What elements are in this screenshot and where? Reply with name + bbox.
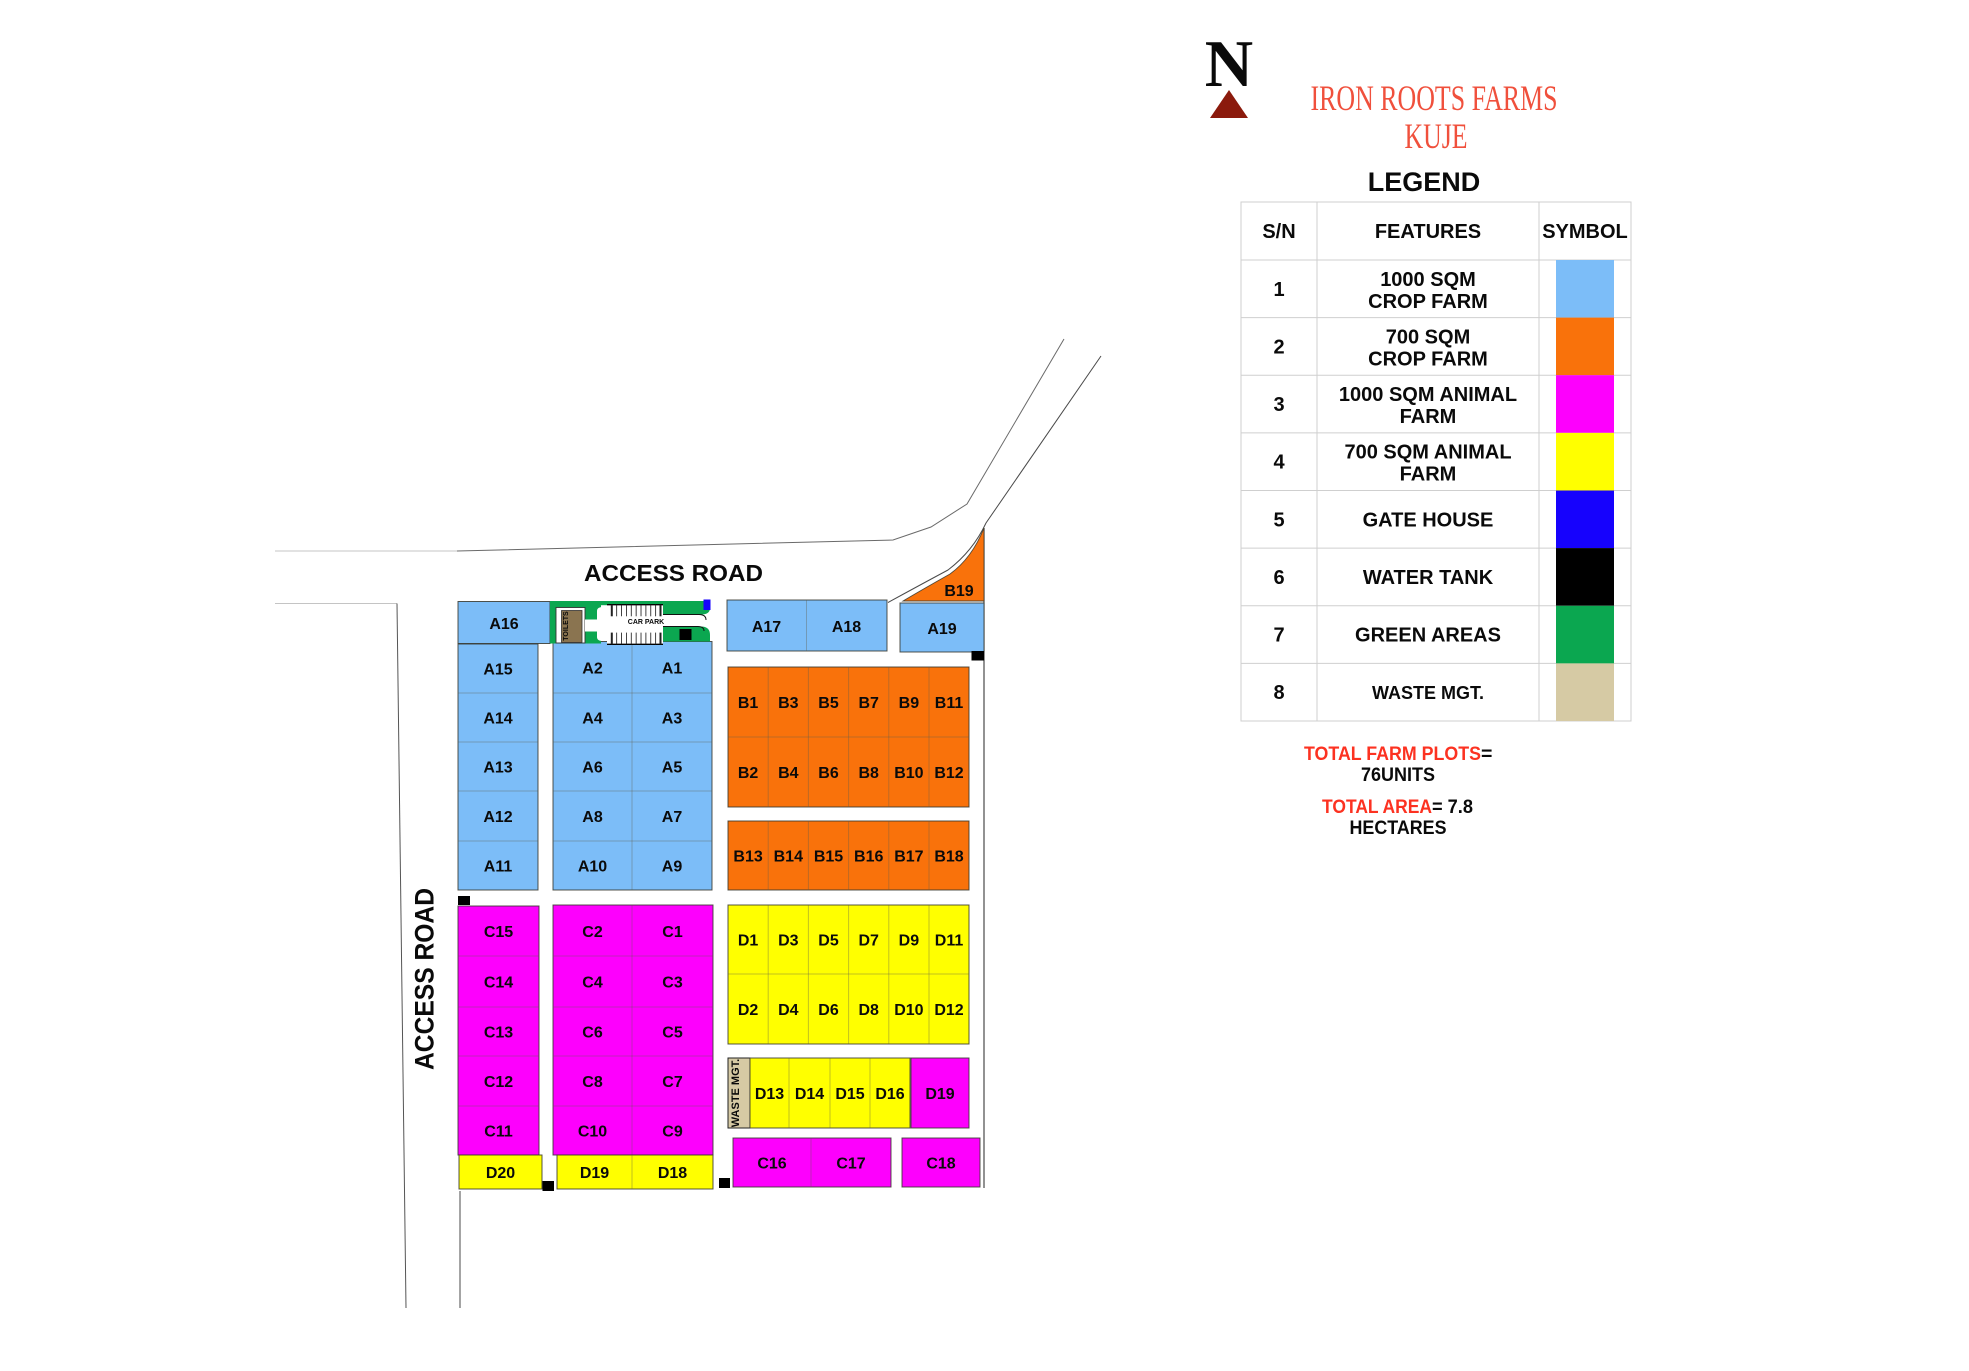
svg-text:B1: B1	[738, 695, 759, 712]
svg-text:LEGEND: LEGEND	[1368, 167, 1481, 197]
svg-text:D19: D19	[580, 1165, 609, 1182]
svg-text:D5: D5	[818, 933, 839, 950]
svg-text:C2: C2	[582, 924, 603, 941]
svg-text:A13: A13	[483, 760, 512, 777]
svg-text:3: 3	[1273, 394, 1284, 416]
svg-text:2: 2	[1273, 336, 1284, 358]
svg-text:D12: D12	[934, 1002, 963, 1019]
svg-text:B9: B9	[899, 695, 920, 712]
svg-text:FARM: FARM	[1400, 406, 1457, 428]
svg-text:B4: B4	[778, 765, 799, 782]
svg-text:D14: D14	[795, 1086, 824, 1103]
svg-text:CAR PARK: CAR PARK	[628, 619, 664, 626]
svg-text:B19: B19	[944, 583, 973, 600]
svg-text:D1: D1	[738, 933, 759, 950]
svg-text:D6: D6	[818, 1002, 839, 1019]
svg-text:D7: D7	[858, 933, 879, 950]
svg-text:C9: C9	[662, 1124, 683, 1141]
svg-text:B17: B17	[894, 849, 923, 866]
svg-text:C13: C13	[484, 1025, 513, 1042]
svg-text:C3: C3	[662, 975, 683, 992]
svg-text:C14: C14	[484, 975, 513, 992]
svg-text:1000 SQM ANIMAL: 1000 SQM ANIMAL	[1339, 384, 1517, 406]
svg-text:D8: D8	[858, 1002, 879, 1019]
svg-text:FARM: FARM	[1400, 464, 1457, 486]
svg-text:C5: C5	[662, 1025, 683, 1042]
svg-text:B2: B2	[738, 765, 759, 782]
svg-text:B18: B18	[934, 849, 963, 866]
svg-text:B7: B7	[858, 695, 879, 712]
svg-text:WATER TANK: WATER TANK	[1363, 567, 1494, 589]
svg-text:CROP FARM: CROP FARM	[1368, 291, 1488, 313]
svg-text:B8: B8	[858, 765, 879, 782]
svg-text:A6: A6	[582, 760, 603, 777]
svg-text:B10: B10	[894, 765, 923, 782]
svg-text:C15: C15	[484, 924, 513, 941]
svg-text:B16: B16	[854, 849, 883, 866]
svg-text:A7: A7	[662, 809, 683, 826]
svg-text:7: 7	[1273, 625, 1284, 647]
svg-text:A2: A2	[582, 660, 603, 677]
svg-text:A14: A14	[483, 711, 512, 728]
svg-text:TOTAL FARM PLOTS: TOTAL FARM PLOTS	[1304, 743, 1481, 765]
svg-text:4: 4	[1273, 452, 1285, 474]
svg-text:C4: C4	[582, 975, 603, 992]
svg-text:C7: C7	[662, 1074, 683, 1091]
svg-text:A5: A5	[662, 760, 683, 777]
svg-text:D19: D19	[925, 1086, 954, 1103]
svg-text:A8: A8	[582, 809, 603, 826]
svg-text:D2: D2	[738, 1002, 759, 1019]
svg-text:A1: A1	[662, 660, 683, 677]
svg-text:B14: B14	[774, 849, 803, 866]
svg-text:GATE HOUSE: GATE HOUSE	[1363, 509, 1494, 531]
svg-text:ACCESS ROAD: ACCESS ROAD	[584, 560, 763, 586]
svg-text:A18: A18	[832, 619, 861, 636]
svg-text:1000 SQM: 1000 SQM	[1380, 269, 1476, 291]
svg-text:WASTE MGT.: WASTE MGT.	[1372, 683, 1484, 703]
svg-text:B6: B6	[818, 765, 839, 782]
svg-text:FEATURES: FEATURES	[1375, 221, 1481, 243]
svg-text:A15: A15	[483, 662, 512, 679]
svg-text:D18: D18	[658, 1165, 687, 1182]
svg-text:A4: A4	[582, 711, 603, 728]
svg-text:C11: C11	[484, 1124, 513, 1141]
svg-text:N: N	[1205, 27, 1253, 101]
svg-text:S/N: S/N	[1262, 221, 1295, 243]
svg-text:HECTARES: HECTARES	[1350, 817, 1447, 839]
svg-text:A17: A17	[752, 619, 781, 636]
svg-text:B5: B5	[818, 695, 839, 712]
svg-text:B12: B12	[934, 765, 963, 782]
svg-text:700 SQM: 700 SQM	[1386, 326, 1470, 348]
svg-text:KUJE: KUJE	[1405, 116, 1468, 156]
svg-text:D13: D13	[755, 1086, 784, 1103]
svg-text:D11: D11	[935, 933, 964, 950]
svg-text:A16: A16	[489, 616, 518, 633]
svg-text:5: 5	[1273, 509, 1284, 531]
svg-text:C10: C10	[578, 1124, 607, 1141]
svg-text:6: 6	[1273, 567, 1284, 589]
svg-text:C1: C1	[662, 924, 683, 941]
svg-text:A9: A9	[662, 859, 683, 876]
svg-text:TOILETS: TOILETS	[563, 611, 570, 641]
svg-text:CROP FARM: CROP FARM	[1368, 348, 1488, 370]
svg-text:B11: B11	[935, 695, 964, 712]
svg-text:C18: C18	[926, 1156, 955, 1173]
svg-text:C6: C6	[582, 1025, 603, 1042]
svg-text:C12: C12	[484, 1074, 513, 1091]
svg-text:C17: C17	[836, 1156, 865, 1173]
svg-text:1: 1	[1273, 279, 1284, 301]
svg-text:B3: B3	[778, 695, 799, 712]
svg-text:A11: A11	[484, 859, 513, 876]
svg-text:C8: C8	[582, 1074, 603, 1091]
svg-text:GREEN AREAS: GREEN AREAS	[1355, 625, 1501, 647]
svg-text:D3: D3	[778, 933, 799, 950]
svg-text:ACCESS ROAD: ACCESS ROAD	[410, 888, 440, 1070]
svg-text:C16: C16	[757, 1156, 786, 1173]
svg-text:B13: B13	[733, 849, 762, 866]
svg-text:700 SQM ANIMAL: 700 SQM ANIMAL	[1344, 442, 1511, 464]
svg-text:D9: D9	[899, 933, 920, 950]
svg-text:8: 8	[1273, 682, 1284, 704]
svg-text:TOTAL AREA: TOTAL AREA	[1322, 796, 1432, 818]
svg-text:D20: D20	[486, 1165, 515, 1182]
svg-text:76UNITS: 76UNITS	[1361, 764, 1435, 786]
svg-text:=: =	[1481, 743, 1492, 765]
svg-text:A12: A12	[483, 809, 512, 826]
svg-text:SYMBOL: SYMBOL	[1542, 221, 1628, 243]
svg-text:D4: D4	[778, 1002, 799, 1019]
svg-text:B15: B15	[814, 849, 843, 866]
svg-text:WASTE MGT.: WASTE MGT.	[730, 1059, 742, 1127]
svg-text:= 7.8: = 7.8	[1432, 796, 1473, 818]
svg-text:D16: D16	[875, 1086, 904, 1103]
svg-text:D15: D15	[835, 1086, 864, 1103]
svg-text:A3: A3	[662, 711, 683, 728]
svg-text:A19: A19	[927, 621, 956, 638]
svg-text:A10: A10	[578, 859, 607, 876]
svg-text:D10: D10	[894, 1002, 923, 1019]
svg-text:IRON ROOTS FARMS: IRON ROOTS FARMS	[1311, 78, 1558, 118]
